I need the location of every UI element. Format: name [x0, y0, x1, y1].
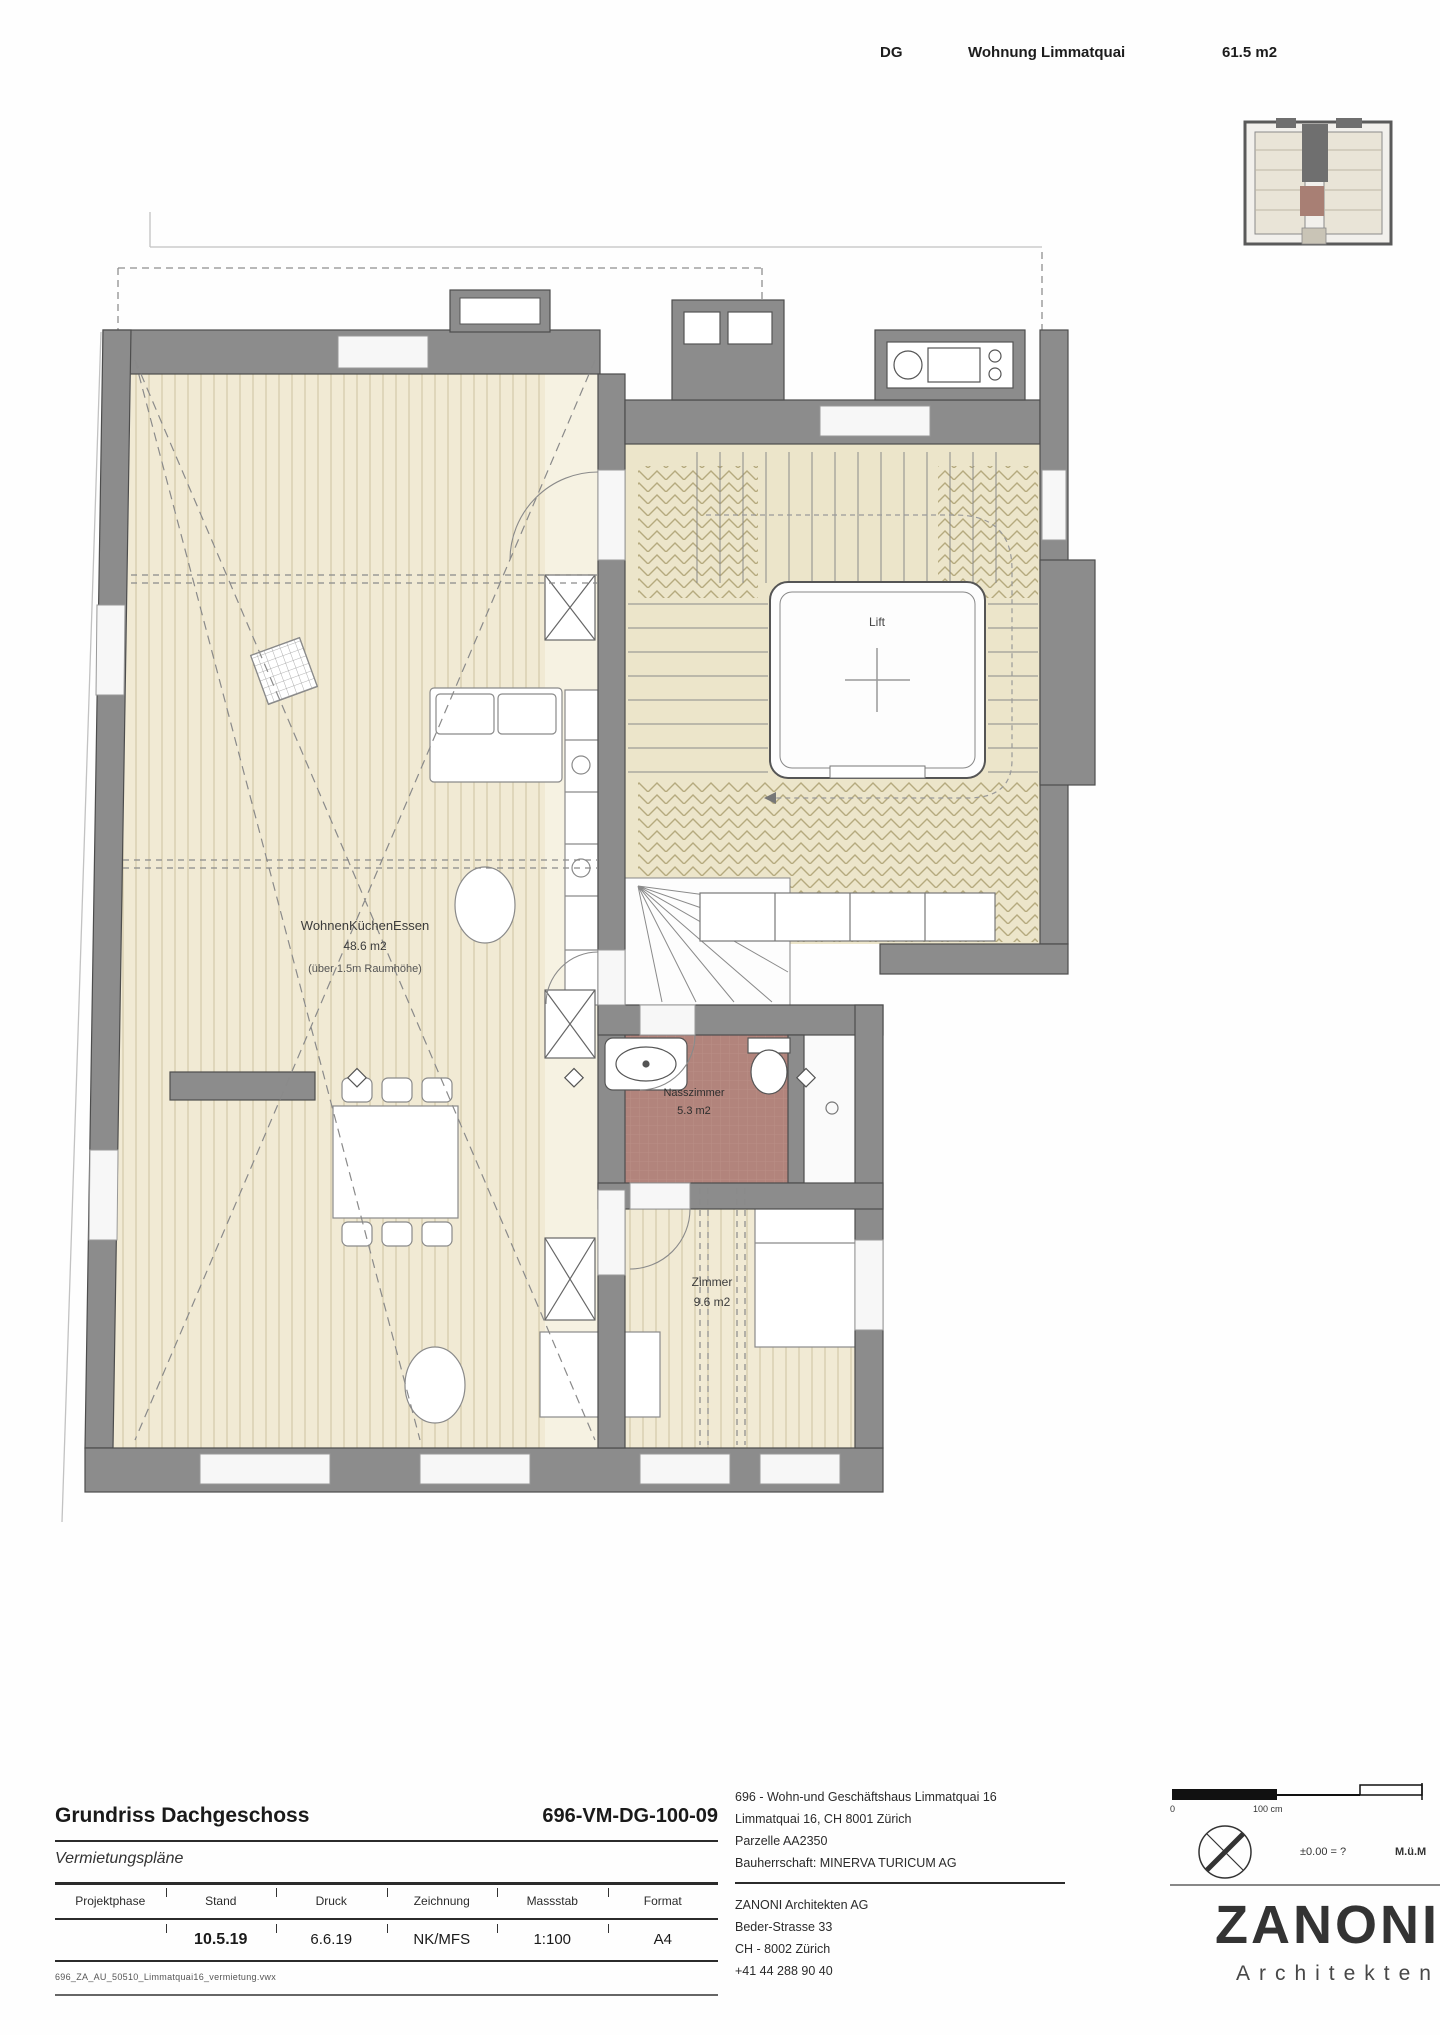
living-room-floor [113, 374, 598, 1448]
elevation-unit: M.ü.M [1395, 1846, 1426, 1858]
meta-value-row: 10.5.19 6.6.19 NK/MFS 1:100 A4 [55, 1926, 718, 1949]
living-name: WohnenKüchenEssen [301, 918, 429, 933]
floor-plan-svg: Lift [0, 0, 1440, 2035]
rule-scale [1170, 1884, 1440, 1886]
architect-name: ZANONI Architekten AG [735, 1894, 868, 1916]
project-parcel: Parzelle AA2350 [735, 1830, 827, 1852]
val-format: A4 [608, 1926, 719, 1949]
val-massstab: 1:100 [497, 1926, 608, 1949]
col-massstab: Massstab [497, 1890, 608, 1908]
project-client: Bauherrschaft: MINERVA TURICUM AG [735, 1852, 957, 1874]
architect-phone: +41 44 288 90 40 [735, 1960, 833, 1982]
rule-5 [55, 1994, 718, 1996]
living-note: (über 1.5m Raumhöhe) [308, 963, 422, 975]
room-name: Zimmer [692, 1275, 733, 1289]
toilet [748, 1038, 790, 1094]
project-address: Limmatquai 16, CH 8001 Zürich [735, 1808, 911, 1830]
landing-floor [804, 1035, 855, 1183]
rug-oval-1 [455, 867, 515, 943]
plan-set-label: Vermietungspläne [55, 1850, 183, 1868]
rule-project [735, 1882, 1065, 1884]
bath-area: 5.3 m2 [677, 1105, 711, 1117]
architect-city: CH - 8002 Zürich [735, 1938, 830, 1960]
rule-1 [55, 1840, 718, 1842]
washbasin [605, 1038, 687, 1090]
val-druck: 6.6.19 [276, 1926, 387, 1949]
logo-architekten: Architekten [1150, 1962, 1440, 1986]
room-area: 9.6 m2 [694, 1295, 731, 1309]
kitchen-counter [565, 690, 598, 1005]
val-projektphase [55, 1926, 166, 1949]
project-name: 696 - Wohn-und Geschäftshaus Limmatquai … [735, 1786, 997, 1808]
bath-name: Nasszimmer [663, 1087, 724, 1099]
lift-label: Lift [869, 615, 886, 629]
rule-4 [55, 1960, 718, 1962]
key-plan-thumbnail [1245, 118, 1391, 244]
drawing-number: 696-VM-DG-100-09 [400, 1805, 718, 1828]
elevation-ref: ±0.00 = ? [1300, 1846, 1346, 1858]
lift-shaft: Lift [770, 582, 985, 778]
hall-bench [700, 893, 995, 941]
living-area: 48.6 m2 [343, 939, 387, 953]
scale-100cm: 100 cm [1253, 1804, 1283, 1814]
col-projektphase: Projektphase [55, 1890, 166, 1908]
drawing-title: Grundriss Dachgeschoss [55, 1804, 309, 1828]
col-druck: Druck [276, 1890, 387, 1908]
file-name: 696_ZA_AU_50510_Limmatquai16_vermietung.… [55, 1972, 276, 1982]
sofa [430, 688, 562, 782]
val-zeichnung: NK/MFS [387, 1926, 498, 1949]
col-stand: Stand [166, 1890, 277, 1908]
meta-header-row: Projektphase Stand Druck Zeichnung Masss… [55, 1890, 718, 1908]
col-format: Format [608, 1890, 719, 1908]
logo-zanoni: ZANONI [1150, 1894, 1440, 1956]
drawing-sheet: DG Wohnung Limmatquai 61.5 m2 [0, 0, 1440, 2035]
scale-zero: 0 [1170, 1804, 1175, 1814]
rug-oval-2 [405, 1347, 465, 1423]
col-zeichnung: Zeichnung [387, 1890, 498, 1908]
rule-3 [55, 1918, 718, 1920]
stove-sink-unit [887, 342, 1013, 388]
scale-bar [1172, 1783, 1422, 1800]
val-stand: 10.5.19 [166, 1926, 277, 1949]
rule-2 [55, 1882, 718, 1885]
scale-compass-svg [1160, 1778, 1440, 1888]
north-compass-icon [1199, 1826, 1251, 1878]
architect-street: Beder-Strasse 33 [735, 1916, 832, 1938]
bed [755, 1205, 867, 1347]
